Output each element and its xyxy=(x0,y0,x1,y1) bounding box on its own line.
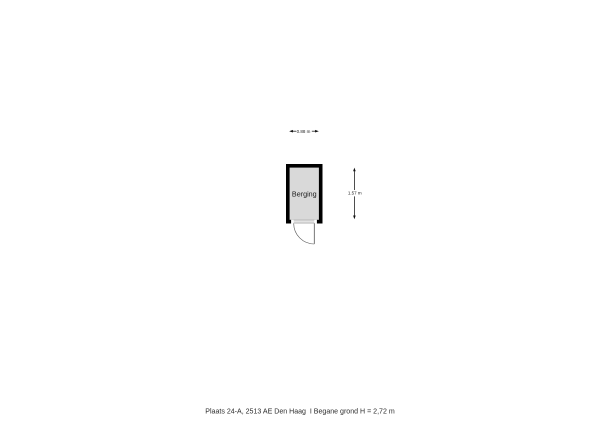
svg-text:Berging: Berging xyxy=(292,190,317,199)
svg-text:1.57 m: 1.57 m xyxy=(348,191,362,196)
svg-text:Plaats 24-A, 2513 AE Den Haag: Plaats 24-A, 2513 AE Den Haag I Begane g… xyxy=(205,408,395,415)
svg-text:0.88 m: 0.88 m xyxy=(297,129,311,134)
